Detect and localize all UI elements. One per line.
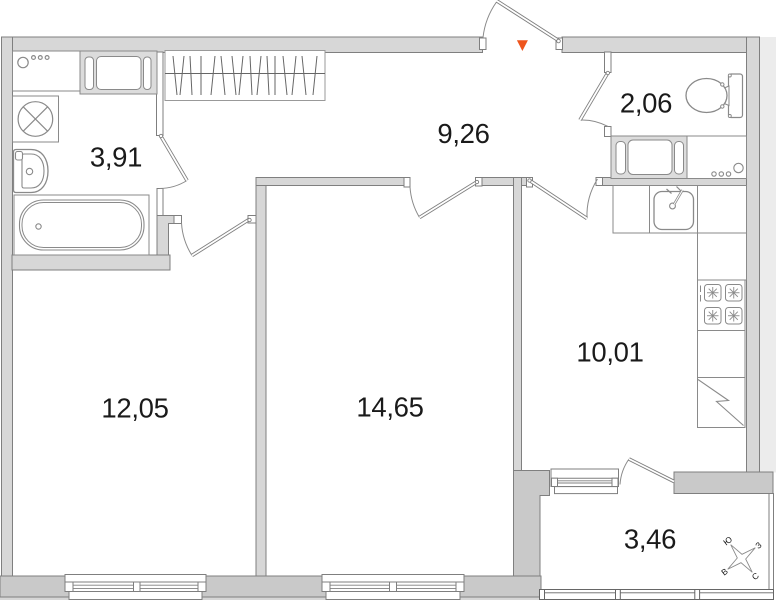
svg-text:3,46: 3,46 (624, 524, 676, 555)
svg-text:12,05: 12,05 (101, 393, 168, 424)
svg-text:2,06: 2,06 (620, 88, 672, 119)
svg-text:3,91: 3,91 (90, 142, 142, 173)
svg-text:10,01: 10,01 (576, 337, 643, 368)
svg-text:14,65: 14,65 (356, 392, 423, 423)
svg-text:9,26: 9,26 (437, 118, 489, 149)
